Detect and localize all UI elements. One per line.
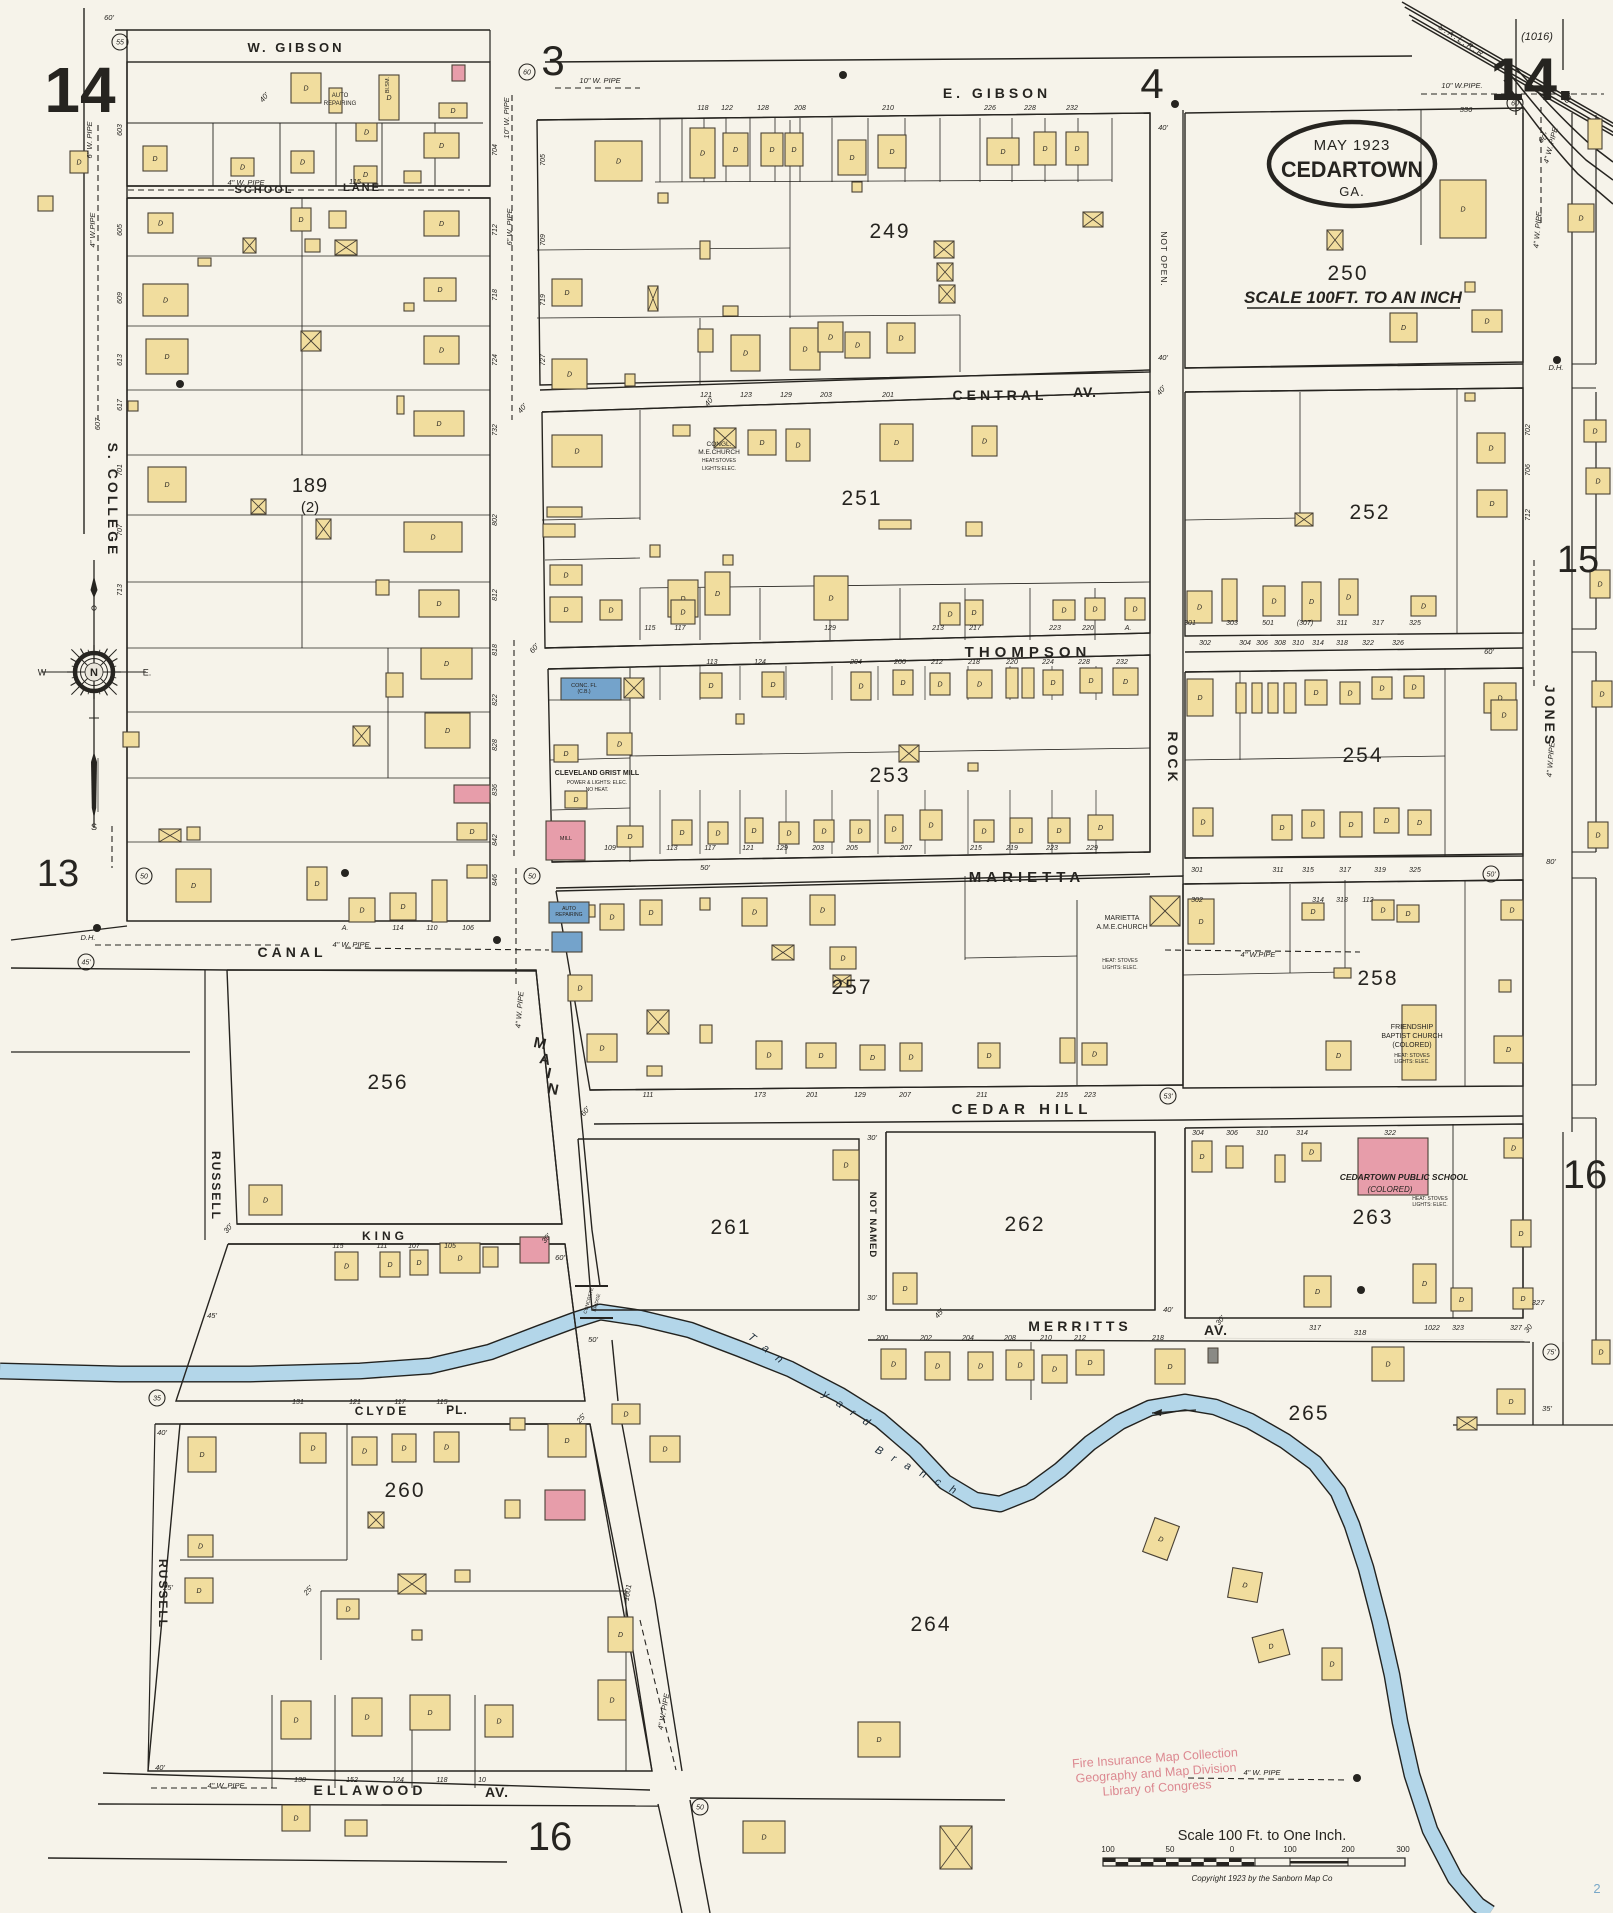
svg-text:30': 30' <box>867 1293 877 1302</box>
svg-text:D: D <box>164 354 169 361</box>
svg-text:ELLAWOOD: ELLAWOOD <box>314 1782 427 1798</box>
svg-text:CLYDE: CLYDE <box>355 1404 410 1418</box>
svg-text:D: D <box>821 829 826 836</box>
svg-text:D: D <box>1050 680 1055 687</box>
svg-text:SCALE 100FT. TO AN INCH: SCALE 100FT. TO AN INCH <box>1244 288 1463 307</box>
svg-text:D: D <box>947 612 952 619</box>
svg-text:40': 40' <box>1158 353 1168 362</box>
svg-text:129: 129 <box>776 845 788 852</box>
svg-text:MILL: MILL <box>560 836 572 842</box>
svg-text:201: 201 <box>805 1092 818 1099</box>
svg-text:D: D <box>1346 595 1351 602</box>
svg-text:152: 152 <box>346 1777 358 1784</box>
svg-text:50: 50 <box>1166 1845 1175 1854</box>
svg-text:207: 207 <box>898 1092 912 1099</box>
svg-text:D: D <box>163 298 168 305</box>
svg-text:D: D <box>1422 1281 1427 1288</box>
svg-text:D: D <box>1520 1296 1525 1303</box>
svg-text:317: 317 <box>1339 867 1352 874</box>
svg-text:D: D <box>1123 679 1128 686</box>
svg-text:D: D <box>891 1362 896 1369</box>
svg-text:D: D <box>795 443 800 450</box>
svg-text:2: 2 <box>1593 1881 1600 1896</box>
svg-text:254: 254 <box>1342 744 1383 767</box>
svg-text:RUSSELL: RUSSELL <box>209 1151 223 1221</box>
svg-text:D: D <box>300 160 305 167</box>
svg-text:D: D <box>1313 690 1318 697</box>
svg-text:55: 55 <box>116 40 124 47</box>
svg-text:D: D <box>298 217 303 224</box>
svg-text:D: D <box>450 108 455 115</box>
svg-text:D: D <box>1087 1360 1092 1367</box>
svg-text:322: 322 <box>1384 1130 1396 1137</box>
svg-text:D: D <box>1092 1052 1097 1059</box>
svg-text:117: 117 <box>704 845 716 852</box>
svg-text:D: D <box>855 343 860 350</box>
svg-text:D: D <box>439 221 444 228</box>
svg-text:D: D <box>1088 678 1093 685</box>
svg-text:D: D <box>1056 828 1061 835</box>
svg-text:702: 702 <box>1525 424 1532 436</box>
svg-text:228: 228 <box>1023 105 1036 112</box>
svg-text:NOT OPEN.: NOT OPEN. <box>1159 231 1169 287</box>
svg-text:RUSSELL: RUSSELL <box>156 1559 170 1629</box>
svg-text:D: D <box>616 159 621 166</box>
svg-text:308: 308 <box>1274 640 1286 647</box>
svg-text:D: D <box>1200 820 1205 827</box>
svg-text:CENTRAL: CENTRAL <box>953 387 1048 403</box>
svg-text:D: D <box>345 1607 350 1614</box>
svg-text:Scale 100 Ft. to One Inch.: Scale 100 Ft. to One Inch. <box>1178 1828 1346 1844</box>
svg-text:LIGHTS: ELEC.: LIGHTS: ELEC. <box>1394 1059 1429 1065</box>
svg-text:MARIETTA: MARIETTA <box>1105 915 1140 922</box>
svg-text:D: D <box>1595 479 1600 486</box>
svg-text:D: D <box>359 908 364 915</box>
svg-text:D: D <box>430 535 435 542</box>
svg-text:D: D <box>439 348 444 355</box>
svg-text:JONES: JONES <box>1542 685 1558 747</box>
svg-text:D: D <box>623 1412 628 1419</box>
svg-text:6" W. PIPE: 6" W. PIPE <box>85 121 94 159</box>
svg-text:121: 121 <box>700 392 712 399</box>
svg-text:D: D <box>898 336 903 343</box>
svg-text:D: D <box>1509 908 1514 915</box>
svg-text:719: 719 <box>540 294 547 306</box>
svg-text:115: 115 <box>644 625 655 632</box>
svg-text:302: 302 <box>1199 640 1211 647</box>
svg-text:818: 818 <box>492 644 499 656</box>
svg-text:E. GIBSON: E. GIBSON <box>943 85 1051 101</box>
svg-text:D: D <box>1347 691 1352 698</box>
svg-text:707: 707 <box>117 523 124 536</box>
svg-text:4: 4 <box>1140 60 1163 107</box>
svg-text:D: D <box>364 130 369 137</box>
svg-text:Bl.SM.: Bl.SM. <box>385 76 391 93</box>
svg-text:121: 121 <box>742 845 754 852</box>
svg-text:D: D <box>436 421 441 428</box>
svg-text:D: D <box>986 1053 991 1060</box>
svg-text:(1016): (1016) <box>1521 31 1553 43</box>
svg-text:323: 323 <box>1452 1325 1464 1332</box>
svg-text:D: D <box>1042 146 1047 153</box>
svg-text:D: D <box>662 1447 667 1454</box>
svg-text:111: 111 <box>377 1243 388 1250</box>
svg-text:251: 251 <box>841 487 882 510</box>
svg-text:D: D <box>1385 1362 1390 1369</box>
svg-text:D: D <box>1411 685 1416 692</box>
svg-text:217: 217 <box>968 625 982 632</box>
svg-text:210: 210 <box>1039 1335 1052 1342</box>
svg-text:257: 257 <box>831 976 872 999</box>
svg-text:(2): (2) <box>301 499 319 516</box>
svg-text:D: D <box>416 1260 421 1267</box>
svg-text:327: 327 <box>1532 1298 1545 1307</box>
svg-text:D: D <box>564 1438 569 1445</box>
svg-text:D: D <box>573 797 578 804</box>
svg-text:210: 210 <box>881 105 894 112</box>
svg-text:MARIETTA: MARIETTA <box>969 869 1085 886</box>
svg-text:D: D <box>981 829 986 836</box>
svg-text:(307): (307) <box>1297 620 1313 627</box>
svg-text:CEDARTOWN: CEDARTOWN <box>1281 157 1423 182</box>
svg-text:D: D <box>978 1364 983 1371</box>
svg-text:718: 718 <box>492 289 499 301</box>
svg-text:LIGHTS: ELEC.: LIGHTS: ELEC. <box>1102 965 1137 971</box>
svg-text:D: D <box>1506 1047 1511 1054</box>
svg-text:PL.: PL. <box>446 1403 468 1417</box>
svg-text:10: 10 <box>478 1777 486 1784</box>
svg-text:712: 712 <box>1525 509 1532 521</box>
svg-text:D: D <box>617 742 622 749</box>
svg-text:264: 264 <box>910 1613 951 1636</box>
svg-text:129: 129 <box>824 625 836 632</box>
svg-text:D: D <box>1459 1297 1464 1304</box>
svg-text:A.M.E.CHURCH: A.M.E.CHURCH <box>1096 924 1147 931</box>
svg-text:D: D <box>1405 911 1410 918</box>
svg-text:D: D <box>751 828 756 835</box>
svg-text:260: 260 <box>384 1479 425 1502</box>
svg-text:D: D <box>1598 1350 1603 1357</box>
svg-text:D: D <box>1592 429 1597 436</box>
svg-text:4" W.PIPE: 4" W.PIPE <box>1241 950 1277 959</box>
svg-text:D: D <box>680 610 685 617</box>
svg-text:D: D <box>648 910 653 917</box>
svg-text:THOMPSON: THOMPSON <box>965 644 1092 661</box>
svg-text:256: 256 <box>367 1071 408 1094</box>
svg-text:GA.: GA. <box>1339 184 1364 199</box>
svg-text:D: D <box>857 829 862 836</box>
svg-text:45': 45' <box>207 1311 217 1320</box>
svg-text:300: 300 <box>1396 1845 1410 1854</box>
svg-text:D: D <box>761 1835 766 1842</box>
svg-text:301: 301 <box>1184 620 1196 627</box>
svg-text:201: 201 <box>881 392 894 399</box>
svg-text:317: 317 <box>1372 620 1385 627</box>
svg-text:D: D <box>437 287 442 294</box>
svg-text:501: 501 <box>1262 620 1274 627</box>
svg-text:204: 204 <box>961 1335 974 1342</box>
svg-text:704: 704 <box>492 144 499 156</box>
svg-text:D: D <box>1309 1150 1314 1157</box>
svg-text:60': 60' <box>104 13 114 22</box>
svg-text:D: D <box>1599 692 1604 699</box>
svg-text:D: D <box>1401 325 1406 332</box>
svg-text:173: 173 <box>754 1092 766 1099</box>
svg-text:D: D <box>401 1446 406 1453</box>
svg-text:50: 50 <box>528 874 536 881</box>
svg-text:D: D <box>858 684 863 691</box>
svg-text:123: 123 <box>740 392 752 399</box>
svg-text:MAY 1923: MAY 1923 <box>1314 137 1391 154</box>
svg-text:D: D <box>908 1055 913 1062</box>
svg-text:212: 212 <box>930 659 943 666</box>
svg-text:D: D <box>1597 582 1602 589</box>
svg-text:50': 50' <box>700 863 710 872</box>
svg-text:262: 262 <box>1004 1213 1045 1236</box>
svg-text:LIGHTS:ELEC.: LIGHTS:ELEC. <box>702 466 736 472</box>
svg-text:4" W. PIPE: 4" W. PIPE <box>1244 1768 1282 1777</box>
svg-text:D: D <box>1310 822 1315 829</box>
svg-text:D: D <box>240 165 245 172</box>
svg-text:D: D <box>1271 599 1276 606</box>
svg-text:218: 218 <box>967 659 980 666</box>
svg-text:836: 836 <box>492 784 499 796</box>
svg-text:223: 223 <box>1048 625 1061 632</box>
svg-text:228: 228 <box>1077 659 1090 666</box>
svg-text:205: 205 <box>845 845 858 852</box>
svg-text:128: 128 <box>757 105 769 112</box>
svg-text:D: D <box>902 1286 907 1293</box>
svg-text:D: D <box>1460 207 1465 214</box>
svg-text:REPAIRING: REPAIRING <box>555 912 582 918</box>
svg-text:40': 40' <box>1163 1305 1173 1314</box>
svg-text:326: 326 <box>1392 640 1404 647</box>
svg-text:D: D <box>469 829 474 836</box>
svg-text:D: D <box>840 956 845 963</box>
svg-text:D: D <box>1518 1231 1523 1238</box>
svg-text:D: D <box>843 1163 848 1170</box>
svg-text:D: D <box>770 682 775 689</box>
svg-text:D: D <box>982 439 987 446</box>
svg-text:D: D <box>1199 1154 1204 1161</box>
svg-text:727: 727 <box>540 353 547 366</box>
svg-text:D: D <box>891 827 896 834</box>
svg-text:D: D <box>627 834 632 841</box>
svg-text:40': 40' <box>157 1428 167 1437</box>
svg-text:D: D <box>362 1449 367 1456</box>
svg-text:124: 124 <box>392 1777 404 1784</box>
svg-text:261: 261 <box>710 1216 751 1239</box>
svg-text:HEAT:STOVES: HEAT:STOVES <box>702 458 737 464</box>
svg-text:AV.: AV. <box>485 1784 509 1800</box>
svg-text:75': 75' <box>1546 1350 1556 1357</box>
svg-text:6" W. PIPE: 6" W. PIPE <box>505 208 514 246</box>
svg-text:306: 306 <box>1256 640 1268 647</box>
svg-text:D: D <box>444 1445 449 1452</box>
svg-text:200: 200 <box>1341 1845 1355 1854</box>
svg-text:D: D <box>564 290 569 297</box>
svg-text:311: 311 <box>1272 867 1283 874</box>
svg-text:16: 16 <box>1563 1153 1608 1197</box>
svg-text:W: W <box>38 668 47 678</box>
svg-text:D: D <box>609 1698 614 1705</box>
svg-text:50': 50' <box>588 1335 598 1344</box>
svg-text:215: 215 <box>969 845 982 852</box>
svg-text:14: 14 <box>44 54 116 126</box>
svg-text:D: D <box>263 1198 268 1205</box>
svg-text:218: 218 <box>1151 1335 1164 1342</box>
svg-text:D: D <box>743 351 748 358</box>
svg-text:A.: A. <box>341 925 349 932</box>
svg-text:D: D <box>1348 822 1353 829</box>
svg-text:60': 60' <box>1484 647 1494 656</box>
svg-text:D: D <box>436 601 441 608</box>
svg-text:802: 802 <box>492 514 499 526</box>
svg-text:713: 713 <box>117 584 124 596</box>
svg-text:D: D <box>700 151 705 158</box>
svg-text:D: D <box>387 1262 392 1269</box>
svg-text:253: 253 <box>869 764 910 787</box>
svg-text:13: 13 <box>37 853 79 895</box>
svg-text:D: D <box>928 823 933 830</box>
svg-text:D: D <box>733 147 738 154</box>
svg-text:724: 724 <box>492 354 499 366</box>
svg-text:10" W. PIPE: 10" W. PIPE <box>579 76 621 85</box>
svg-text:129: 129 <box>780 392 792 399</box>
svg-text:D: D <box>1061 608 1066 615</box>
svg-text:D: D <box>310 1446 315 1453</box>
svg-text:603: 603 <box>117 124 124 136</box>
svg-text:D: D <box>199 1452 204 1459</box>
svg-text:D: D <box>1198 919 1203 926</box>
svg-text:35': 35' <box>1542 1404 1552 1413</box>
svg-text:LIGHTS: ELEC.: LIGHTS: ELEC. <box>1412 1202 1447 1208</box>
svg-text:REPAIRING: REPAIRING <box>324 101 357 107</box>
svg-text:112: 112 <box>1362 897 1373 904</box>
svg-text:212: 212 <box>1073 1335 1086 1342</box>
svg-text:14.: 14. <box>1490 46 1573 113</box>
svg-text:50: 50 <box>696 1805 704 1812</box>
svg-text:732: 732 <box>492 424 499 436</box>
svg-text:100: 100 <box>1283 1845 1297 1854</box>
svg-text:D: D <box>303 86 308 93</box>
svg-text:129: 129 <box>854 1092 866 1099</box>
svg-text:311: 311 <box>1336 620 1347 627</box>
svg-text:D: D <box>708 683 713 690</box>
svg-text:N: N <box>90 667 98 679</box>
svg-text:124: 124 <box>754 659 766 666</box>
svg-text:229: 229 <box>1085 845 1098 852</box>
svg-text:45': 45' <box>81 960 91 967</box>
svg-text:D: D <box>818 1053 823 1060</box>
svg-text:D: D <box>876 1737 881 1744</box>
svg-text:318: 318 <box>1336 897 1348 904</box>
svg-text:D: D <box>1000 149 1005 156</box>
svg-text:D: D <box>1018 828 1023 835</box>
svg-text:50: 50 <box>140 874 148 881</box>
svg-text:D: D <box>786 831 791 838</box>
svg-text:113: 113 <box>666 845 677 852</box>
svg-text:D: D <box>439 143 444 150</box>
svg-text:203: 203 <box>819 392 832 399</box>
svg-text:111: 111 <box>643 1092 654 1099</box>
svg-text:D: D <box>1489 501 1494 508</box>
svg-text:232: 232 <box>1065 105 1078 112</box>
svg-text:325: 325 <box>1409 620 1421 627</box>
svg-text:208: 208 <box>793 105 806 112</box>
svg-text:325: 325 <box>1409 867 1421 874</box>
svg-text:0: 0 <box>1230 1845 1235 1854</box>
svg-text:117: 117 <box>674 625 686 632</box>
svg-text:315: 315 <box>1302 867 1314 874</box>
svg-text:609: 609 <box>117 292 124 304</box>
svg-text:D: D <box>1501 713 1506 720</box>
svg-text:ROCK: ROCK <box>1165 731 1181 784</box>
svg-text:828: 828 <box>492 739 499 751</box>
svg-text:D: D <box>563 751 568 758</box>
svg-text:S. COLLEGE: S. COLLEGE <box>105 443 121 558</box>
svg-text:200: 200 <box>893 659 906 666</box>
svg-text:D: D <box>577 986 582 993</box>
svg-text:60': 60' <box>555 1253 565 1262</box>
svg-text:MERRITTS: MERRITTS <box>1028 1318 1132 1334</box>
svg-text:D: D <box>1197 695 1202 702</box>
svg-text:D: D <box>196 1588 201 1595</box>
svg-text:D: D <box>364 1715 369 1722</box>
svg-text:D: D <box>752 910 757 917</box>
svg-text:207: 207 <box>899 845 913 852</box>
svg-text:712: 712 <box>492 224 499 236</box>
svg-text:200: 200 <box>875 1335 888 1342</box>
svg-text:(COLORED): (COLORED) <box>1392 1042 1431 1049</box>
svg-text:189: 189 <box>292 475 328 497</box>
svg-text:D: D <box>386 95 391 102</box>
svg-text:D: D <box>1279 825 1284 832</box>
svg-text:303: 303 <box>1226 620 1238 627</box>
svg-text:D: D <box>563 573 568 580</box>
svg-text:D: D <box>971 610 976 617</box>
svg-text:D: D <box>618 1632 623 1639</box>
svg-text:CEDAR HILL: CEDAR HILL <box>952 1101 1093 1118</box>
svg-text:263: 263 <box>1352 1206 1393 1229</box>
svg-text:314: 314 <box>1312 897 1324 904</box>
svg-text:D: D <box>1092 607 1097 614</box>
svg-text:D: D <box>164 482 169 489</box>
svg-text:80': 80' <box>1546 857 1556 866</box>
svg-text:D: D <box>293 1816 298 1823</box>
svg-text:D: D <box>889 149 894 156</box>
svg-text:301: 301 <box>1191 867 1203 874</box>
svg-text:D: D <box>791 147 796 154</box>
svg-text:D: D <box>977 682 982 689</box>
svg-text:617: 617 <box>117 398 124 411</box>
svg-text:D: D <box>496 1719 501 1726</box>
svg-text:211: 211 <box>975 1092 987 1099</box>
svg-text:D: D <box>935 1364 940 1371</box>
svg-text:107: 107 <box>408 1243 421 1250</box>
svg-text:D: D <box>198 1544 203 1551</box>
svg-text:822: 822 <box>492 694 499 706</box>
svg-text:POWER & LIGHTS: ELEC.: POWER & LIGHTS: ELEC. <box>567 780 627 786</box>
svg-text:E.: E. <box>143 668 152 678</box>
svg-text:203: 203 <box>811 845 824 852</box>
svg-text:106: 106 <box>462 925 474 932</box>
svg-text:D: D <box>457 1256 462 1263</box>
svg-text:D: D <box>444 661 449 668</box>
svg-text:D: D <box>158 221 163 228</box>
svg-text:D: D <box>894 440 899 447</box>
svg-text:D: D <box>427 1710 432 1717</box>
